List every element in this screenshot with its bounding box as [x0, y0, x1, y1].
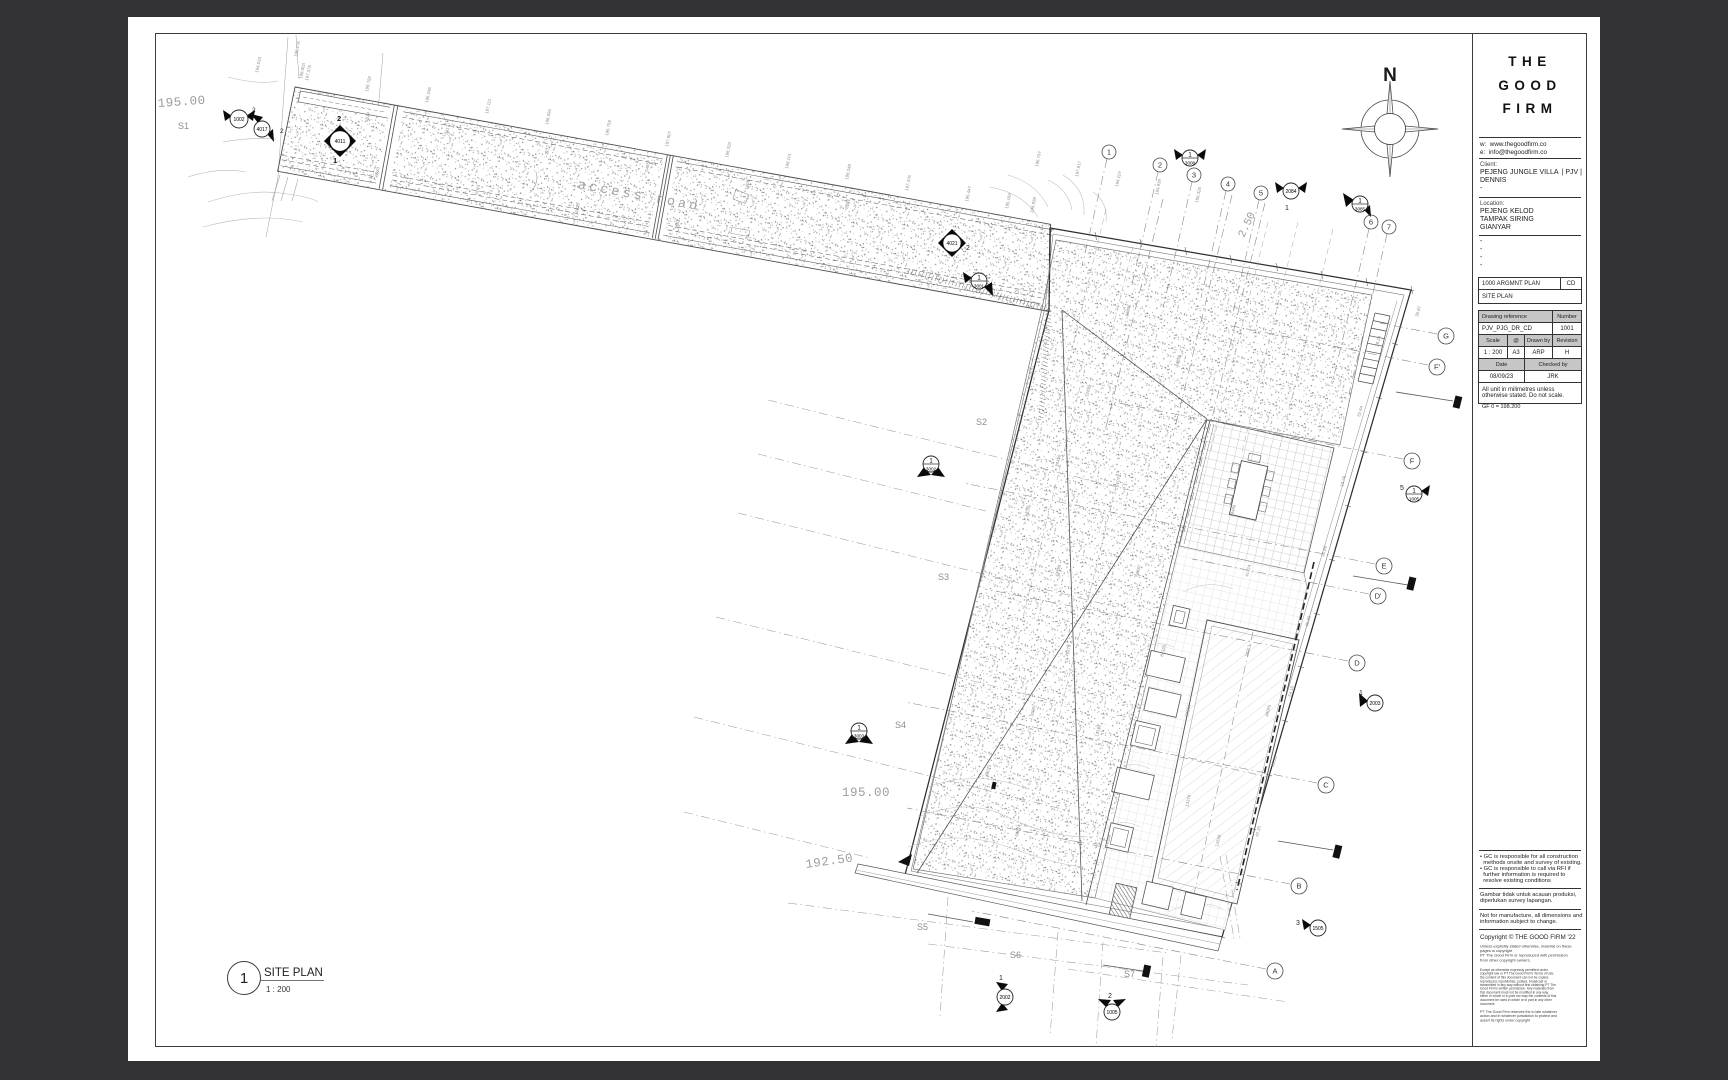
svg-text:2084: 2084	[1285, 189, 1296, 195]
svg-text:D: D	[1354, 659, 1360, 668]
svg-text:2003: 2003	[1369, 701, 1380, 707]
svg-text:S1: S1	[178, 121, 189, 131]
svg-text:45.30: 45.30	[1304, 615, 1312, 627]
svg-text:3085: 3085	[1355, 207, 1366, 212]
svg-text:7: 7	[1387, 223, 1391, 232]
svg-text:5: 5	[1400, 485, 1404, 492]
svg-text:S4: S4	[895, 720, 906, 730]
svg-text:1005: 1005	[1106, 1010, 1117, 1016]
svg-text:6: 6	[1369, 218, 1373, 227]
svg-text:197.111: 197.111	[484, 98, 492, 114]
svg-text:198.328: 198.328	[1194, 186, 1202, 203]
svg-text:5: 5	[1259, 189, 1263, 198]
svg-text:3002: 3002	[926, 467, 937, 472]
svg-text:1: 1	[1285, 205, 1289, 212]
svg-text:2.50: 2.50	[1237, 211, 1259, 240]
svg-text:1: 1	[333, 156, 337, 165]
svg-text:3001: 3001	[974, 284, 985, 289]
svg-text:S3: S3	[938, 572, 949, 582]
svg-text:1005: 1005	[1409, 497, 1420, 502]
svg-text:F: F	[1410, 457, 1415, 466]
svg-text:30.89: 30.89	[1320, 545, 1328, 557]
svg-text:194.939: 194.939	[1154, 178, 1162, 195]
svg-text:192.50: 192.50	[805, 851, 854, 872]
svg-text:E: E	[1381, 562, 1386, 571]
svg-text:C: C	[1323, 781, 1329, 790]
svg-text:4011: 4011	[335, 139, 346, 145]
svg-text:195.447: 195.447	[964, 185, 972, 202]
svg-text:3003: 3003	[854, 734, 865, 739]
svg-text:SITE PLAN: SITE PLAN	[264, 967, 323, 979]
svg-text:197.807: 197.807	[664, 130, 672, 147]
svg-text:S7: S7	[1124, 969, 1135, 979]
svg-text:195.160: 195.160	[1004, 192, 1012, 209]
svg-text:S6: S6	[1010, 950, 1021, 960]
svg-text:197.917: 197.917	[1074, 160, 1082, 177]
svg-text:1: 1	[1359, 690, 1363, 697]
svg-text:195.176: 195.176	[293, 40, 301, 57]
svg-text:194.119: 194.119	[1114, 170, 1122, 187]
svg-text:196.758: 196.758	[604, 119, 612, 136]
svg-text:S5: S5	[917, 922, 928, 932]
svg-text:G: G	[1443, 332, 1449, 341]
svg-text:196.594: 196.594	[544, 108, 552, 125]
svg-text:3008: 3008	[1185, 161, 1196, 166]
svg-text:35.87: 35.87	[1414, 305, 1422, 317]
svg-text:3: 3	[1296, 920, 1300, 927]
svg-text:1: 1	[999, 975, 1003, 982]
svg-text:2: 2	[252, 107, 256, 114]
svg-text:S2: S2	[976, 417, 987, 427]
svg-text:3: 3	[1192, 171, 1196, 180]
svg-text:195.00: 195.00	[842, 786, 890, 800]
svg-text:198.782: 198.782	[364, 75, 372, 92]
svg-text:1: 1	[1107, 148, 1111, 157]
svg-text:N: N	[1383, 65, 1397, 86]
svg-text:198.938: 198.938	[1029, 196, 1037, 213]
svg-text:4: 4	[1226, 180, 1230, 189]
svg-text:2002: 2002	[999, 995, 1010, 1001]
svg-text:196.246: 196.246	[424, 86, 432, 103]
svg-text:195.00: 195.00	[157, 94, 206, 111]
svg-text:198.333: 198.333	[724, 141, 732, 158]
svg-text:2: 2	[1108, 993, 1112, 1000]
svg-text:4017: 4017	[256, 127, 267, 133]
svg-text:18.79: 18.79	[1339, 475, 1347, 487]
svg-text:2: 2	[966, 245, 970, 252]
svg-text:194.533: 194.533	[254, 56, 262, 73]
svg-text:198.101: 198.101	[784, 152, 792, 169]
svg-text:B: B	[1296, 882, 1301, 891]
svg-text:A: A	[1272, 967, 1277, 976]
svg-text:D': D'	[1375, 592, 1382, 601]
svg-text:196.797: 196.797	[1034, 150, 1042, 167]
svg-text:1505: 1505	[1312, 926, 1323, 932]
svg-text:2: 2	[1158, 161, 1162, 170]
svg-text:2: 2	[280, 128, 284, 135]
svg-text:F': F'	[1434, 363, 1441, 372]
svg-text:1: 1	[240, 970, 248, 987]
svg-text:1002: 1002	[233, 117, 244, 123]
svg-text:197.476: 197.476	[904, 174, 912, 191]
svg-text:4021: 4021	[946, 241, 957, 247]
svg-text:2: 2	[337, 114, 341, 123]
svg-text:198.248: 198.248	[844, 163, 852, 180]
svg-text:1 : 200: 1 : 200	[266, 985, 291, 994]
svg-text:52.64: 52.64	[1356, 405, 1364, 417]
